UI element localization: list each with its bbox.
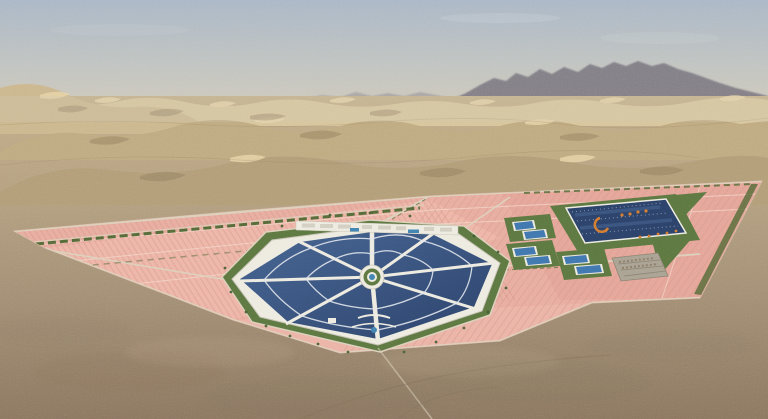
film-grain-overlay bbox=[0, 0, 768, 419]
rendering-canvas bbox=[0, 0, 768, 419]
aerial-rendering-desert-complex bbox=[0, 0, 768, 419]
